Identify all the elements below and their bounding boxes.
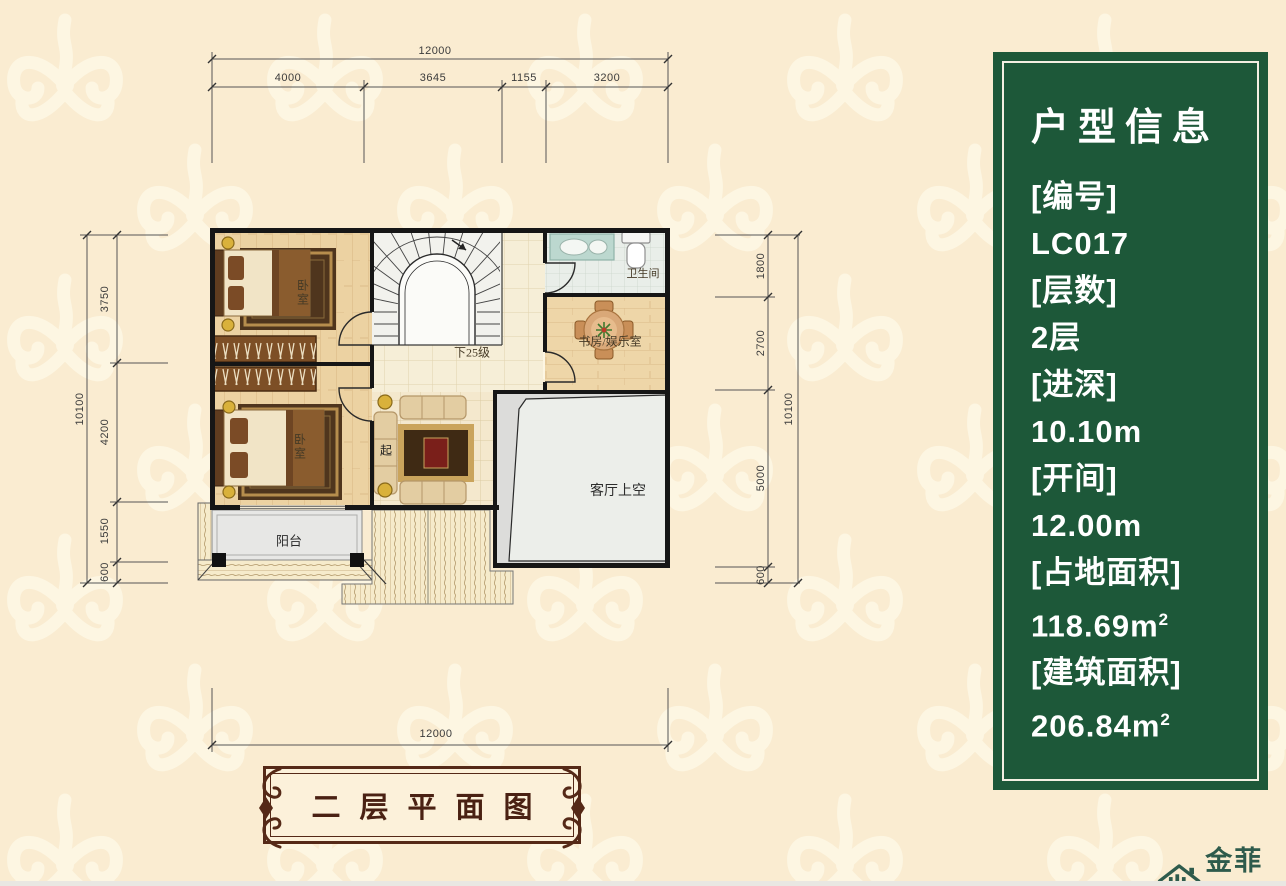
bottom-edge-strip: [0, 881, 1286, 886]
plan-title-plaque: 二层平面图: [263, 766, 581, 844]
dim-left-seg-4: 600: [99, 562, 111, 582]
dim-right-seg-2: 2700: [755, 330, 767, 356]
room-label-study: 书房/娱乐室: [578, 333, 641, 350]
room-label-bedroom-top: 卧室: [295, 279, 312, 307]
dim-top-seg-4: 3200: [594, 72, 620, 84]
dim-right-total: 10100: [783, 392, 795, 425]
info-row-label: [进深]: [1031, 361, 1268, 408]
info-panel-title: 户型信息: [1031, 96, 1268, 151]
info-row-label: [建筑面积]: [1031, 649, 1268, 696]
plaque-ornament-right-icon: [561, 763, 595, 853]
room-label-balcony: 阳台: [276, 531, 302, 550]
info-panel: 户型信息 [编号] LC017 [层数] 2层 [进深] 10.10m [开间]…: [993, 52, 1268, 790]
room-label-sitting: 起: [380, 442, 392, 459]
balcony-door: [240, 505, 345, 510]
dim-top-seg-2: 3645: [420, 72, 446, 84]
dim-top-seg-3: 1155: [511, 72, 537, 84]
info-row-label: [编号]: [1031, 173, 1268, 220]
dim-top-seg-1: 4000: [275, 72, 301, 84]
info-row-label: [层数]: [1031, 267, 1268, 314]
dim-right-seg-1: 1800: [755, 253, 767, 279]
info-row-label: [开间]: [1031, 455, 1268, 502]
dim-top-total: 12000: [418, 45, 451, 57]
plan-title-frame: 二层平面图: [270, 773, 574, 837]
info-row-value: 206.84m2: [1031, 696, 1268, 749]
dim-bottom-total: 12000: [419, 728, 452, 740]
logo-name: 金菲特: [1205, 839, 1286, 886]
dim-left-seg-2: 4200: [99, 419, 111, 445]
room-label-bathroom: 卫生间: [627, 265, 660, 281]
plaque-ornament-left-icon: [249, 763, 283, 853]
info-row-label: [占地面积]: [1031, 549, 1268, 596]
info-row-value: 10.10m: [1031, 408, 1268, 455]
dim-left-seg-3: 1550: [99, 518, 111, 544]
dim-right-seg-3: 5000: [755, 465, 767, 491]
info-row-value: 12.00m: [1031, 502, 1268, 549]
plan-title: 二层平面图: [292, 784, 551, 826]
dim-left-seg-1: 3750: [99, 286, 111, 312]
dim-left-total: 10100: [74, 392, 86, 425]
room-label-living-void: 客厅上空: [590, 480, 646, 500]
info-row-value: 2层: [1031, 314, 1268, 361]
dim-right-seg-4: 600: [755, 565, 767, 585]
brand-logo: JIN FEI TE 金菲特: [1155, 839, 1286, 886]
page: 12000 4000 3645 1155 3200 12000 10100 37…: [0, 0, 1286, 886]
room-label-bedroom-bottom: 卧室: [292, 433, 309, 461]
info-row-value: 118.69m2: [1031, 596, 1268, 649]
info-row-value: LC017: [1031, 220, 1268, 267]
roof-area: [342, 510, 513, 604]
living-void-area: [495, 392, 668, 565]
stairs-note-label: 下25级: [454, 344, 490, 361]
bed-bottom: [214, 401, 342, 500]
